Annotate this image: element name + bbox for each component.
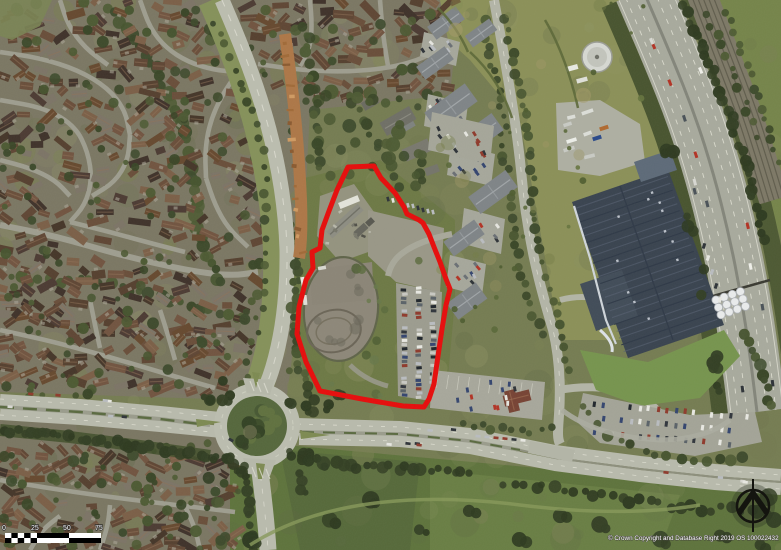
svg-text:50: 50 <box>63 525 71 532</box>
svg-text:25: 25 <box>31 525 39 532</box>
svg-text:75: 75 <box>95 525 103 532</box>
svg-text:© Crown Copyright and Database: © Crown Copyright and Database Right 201… <box>608 534 779 542</box>
svg-text:0: 0 <box>2 525 6 532</box>
